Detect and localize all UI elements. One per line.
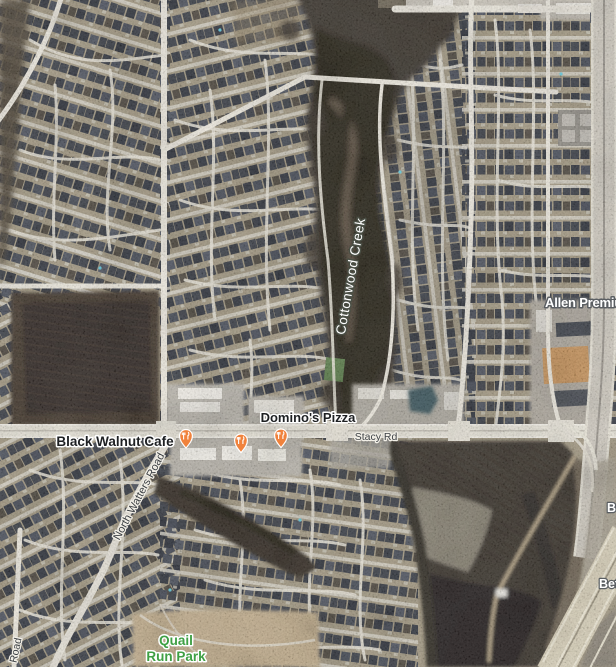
svg-text:Allen Premiu: Allen Premiu bbox=[545, 295, 616, 310]
svg-text:Black Walnut Cafe: Black Walnut Cafe bbox=[56, 434, 174, 449]
svg-text:Bet: Bet bbox=[599, 577, 616, 591]
svg-text:Stacy Rd: Stacy Rd bbox=[355, 431, 398, 443]
svg-text:Run Park: Run Park bbox=[146, 649, 206, 664]
svg-text:Domino's Pizza: Domino's Pizza bbox=[261, 410, 357, 425]
svg-text:Bet: Bet bbox=[607, 501, 616, 515]
svg-text:Quail: Quail bbox=[159, 633, 193, 648]
